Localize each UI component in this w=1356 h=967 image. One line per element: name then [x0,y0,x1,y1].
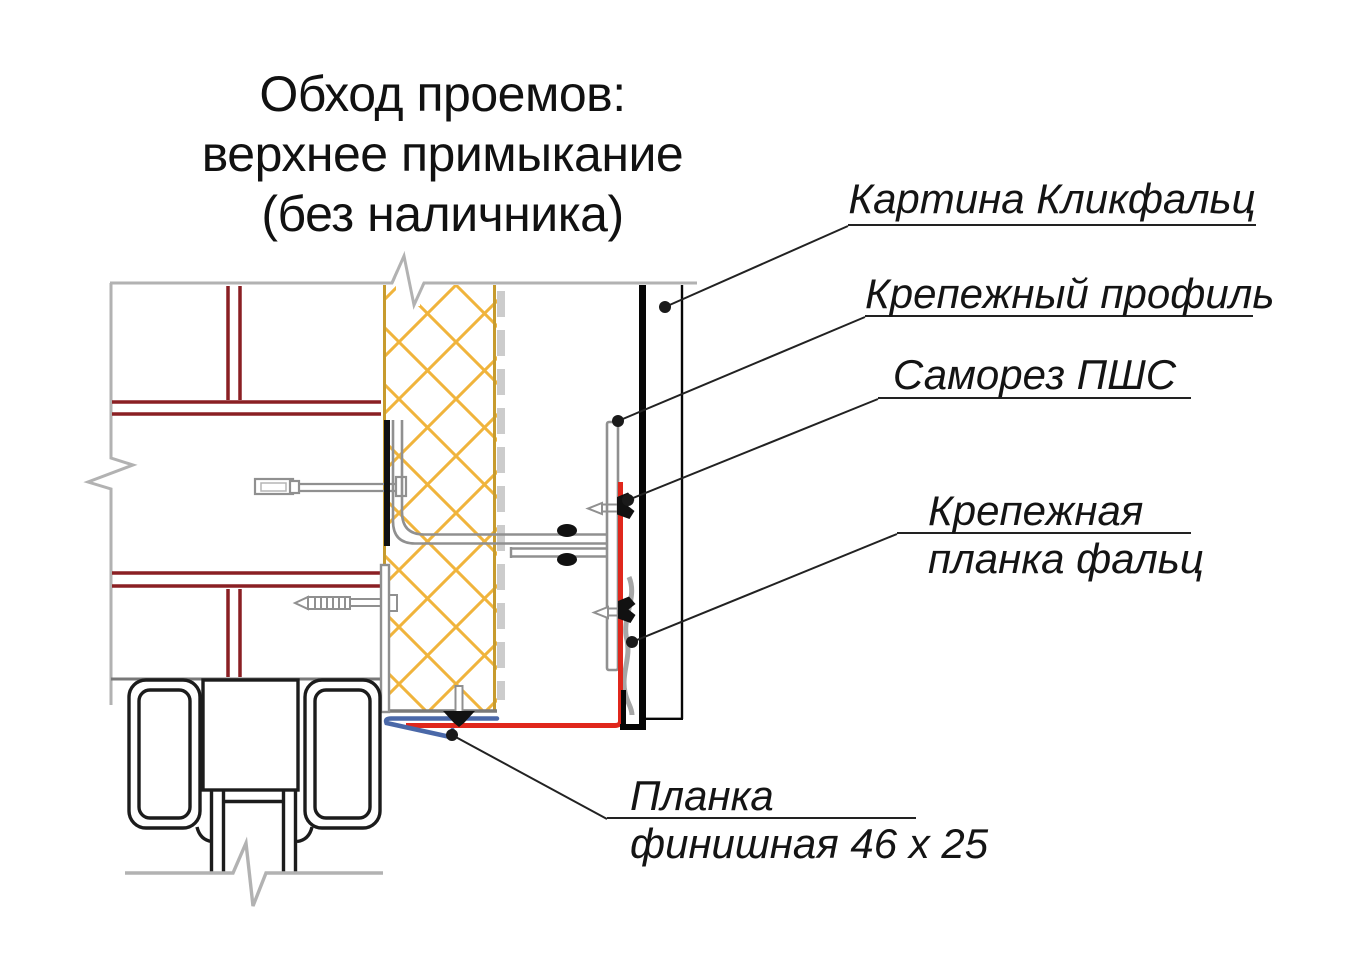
frame-profile-right-inner [315,690,370,818]
label-screw: Саморез ПШС [878,353,1191,397]
leader-line-profile [618,317,865,421]
wall-left-edge [88,283,133,705]
diagram-title: Обход проемов: верхнее примыкание (без н… [180,64,705,244]
dowel-tip [295,597,308,609]
window-frame [125,680,383,906]
lower-bracket-bar [381,565,389,712]
leader-dot [659,301,671,313]
label-mounting-profile: Крепежный профиль [865,272,1253,316]
label-klickfalz-panel: Картина Кликфальц [848,177,1256,221]
anchor-collar [290,481,299,493]
fastener-pin [456,686,463,712]
leader-line-screw [628,399,878,500]
frame-gasket-arc [197,827,212,842]
screw-tip [594,607,608,618]
leader-dot [622,494,634,506]
diagram-canvas: Обход проемов: верхнее примыкание (без н… [0,0,1356,967]
brick-joints [112,286,381,677]
leader-dot [612,415,624,427]
leader-dot [626,636,638,648]
title-line-1: Обход проемов: [180,64,705,124]
klickfalz-panel [620,285,683,729]
frame-gasket-arc [297,827,312,842]
frame-profile-left-inner [139,690,190,818]
thermal-pad-strip [384,420,390,546]
label-falz-strip-line2: планка фальц [928,537,1204,581]
insulation-hatch [383,285,497,712]
leader-line-finish-strip [452,735,607,819]
leader-dot [446,729,458,741]
label-falz-strip-line1: Крепежная [928,489,1143,533]
rivet [557,553,577,566]
leader-line-falz-strip [632,534,897,642]
mounting-profile [607,422,618,670]
title-line-3: (без наличника) [180,184,705,244]
label-finish-strip-line1: Планка [630,774,774,818]
title-line-2: верхнее примыкание [180,124,705,184]
frame-break-line [125,843,383,906]
rivet [557,524,577,537]
frame-center-block [203,680,298,790]
label-finish-strip-line2: финишная 46 x 25 [630,822,988,866]
anchor-sleeve-slot [261,483,286,491]
screw-tip [588,503,602,514]
